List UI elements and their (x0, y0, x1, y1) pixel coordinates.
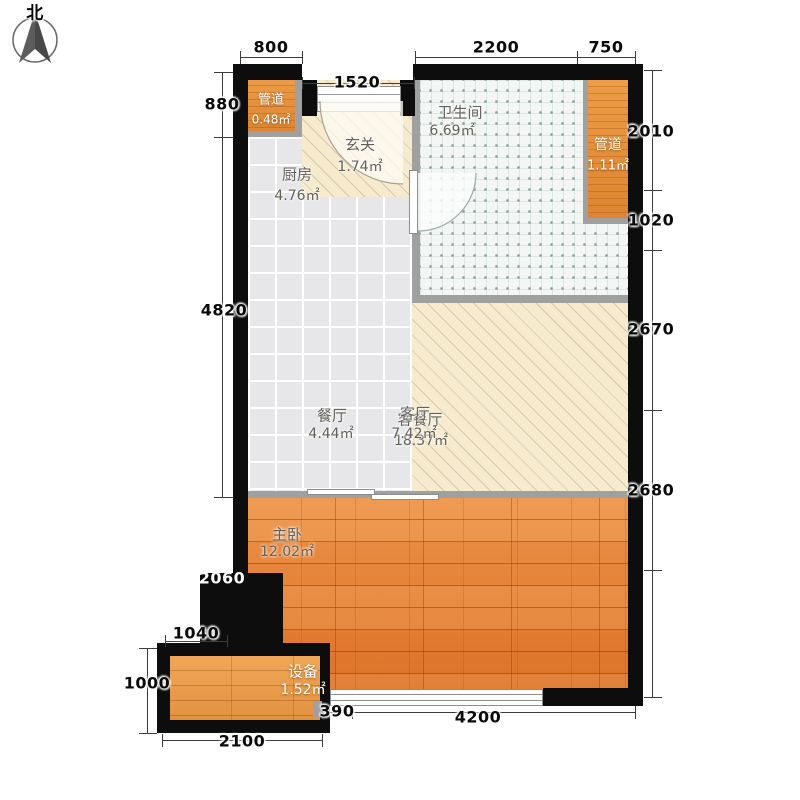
dim-tick (214, 72, 233, 73)
dim-tick (139, 733, 157, 734)
dim-tick (302, 51, 303, 64)
dim-tick (635, 706, 636, 719)
dim-tick (644, 190, 662, 191)
bedroom-area: 12.02㎡ (260, 541, 314, 561)
dim-tick (644, 410, 662, 411)
dim-tick (227, 635, 228, 647)
dim-tick (139, 648, 157, 649)
dining-area: 4.44㎡ (308, 423, 353, 443)
dim-left-1040: 1040 (173, 624, 220, 643)
duct-tl-area: 0.48㎡ (252, 111, 291, 128)
dim-left-2060: 2060 (199, 569, 246, 588)
window-line (331, 694, 542, 695)
dim-tick (214, 497, 233, 498)
entry-door-line (318, 94, 400, 95)
dim-tick (214, 137, 233, 138)
sliding-door-panel (371, 494, 439, 500)
bathroom-bottom-wall (412, 295, 628, 303)
duct-tl-label: 管道 (258, 89, 284, 108)
sliding-door-panel (307, 489, 375, 495)
dim-right-2680: 2680 (628, 481, 675, 500)
dim-line (240, 57, 302, 58)
dim-right-2670: 2670 (628, 320, 675, 339)
outer-wall-bottom-right (543, 688, 643, 706)
room-living-floor (412, 303, 628, 491)
dim-bottom-2100: 2100 (219, 732, 266, 751)
partition-wall (295, 79, 302, 137)
outer-wall-top-right (413, 64, 643, 80)
bathroom-door-leaf (409, 170, 418, 234)
dim-tick (302, 77, 303, 89)
dim-tick (165, 635, 166, 647)
bedroom-window (330, 689, 543, 706)
dim-top-800: 800 (254, 38, 289, 57)
compass-north-label: 北 (26, 0, 44, 24)
duct-right-area: 1.11㎡ (587, 155, 629, 174)
entry-door-post-right (400, 80, 415, 116)
dim-line (222, 72, 223, 497)
dim-tick (644, 250, 662, 251)
dim-left-1000: 1000 (124, 674, 171, 693)
living-area-label: 7.42㎡ (391, 423, 436, 443)
entry-label: 玄关 (345, 134, 375, 155)
dim-tick (644, 570, 662, 571)
dim-tick (644, 697, 662, 698)
dim-entry-1520: 1520 (334, 73, 381, 92)
dim-line (415, 57, 635, 58)
dim-tick (240, 51, 241, 64)
entry-area: 1.74㎡ (337, 156, 382, 176)
entry-door-line (318, 102, 400, 103)
partition-wall (248, 131, 302, 137)
dim-tick (577, 51, 578, 64)
kitchen-area: 4.76㎡ (274, 185, 319, 205)
floor-plan: 北 管道 0.48㎡ 玄关 1.74㎡ 厨房 4.76㎡ 卫生间 6.69㎡ 管… (0, 0, 800, 800)
dim-tick (644, 70, 662, 71)
equipment-area: 1.52㎡ (280, 679, 325, 699)
outer-wall-right (628, 64, 643, 706)
dim-tick (635, 51, 636, 64)
dim-bottom-4200: 4200 (455, 708, 502, 727)
dim-right-1020: 1020 (628, 211, 675, 230)
partition-wall (583, 80, 588, 224)
living-label: 客厅 (400, 403, 430, 424)
bathroom-area: 6.69㎡ (429, 120, 474, 140)
partition-wall (583, 218, 628, 224)
dim-top-2200: 2200 (473, 38, 520, 57)
dim-tick (415, 51, 416, 64)
dim-bottom-390: 390 (320, 702, 355, 721)
entry-door-post-left (302, 80, 317, 116)
dim-top-750: 750 (589, 38, 624, 57)
dim-tick (322, 734, 323, 747)
dim-right-2010: 2010 (628, 122, 675, 141)
kitchen-label: 厨房 (282, 164, 312, 185)
dim-line (652, 70, 653, 697)
duct-right-label: 管道 (594, 134, 622, 154)
dim-left-880: 880 (205, 95, 240, 114)
dim-tick (414, 77, 415, 89)
dim-tick (162, 734, 163, 747)
window-line (331, 700, 542, 701)
dim-left-4820: 4820 (201, 301, 248, 320)
